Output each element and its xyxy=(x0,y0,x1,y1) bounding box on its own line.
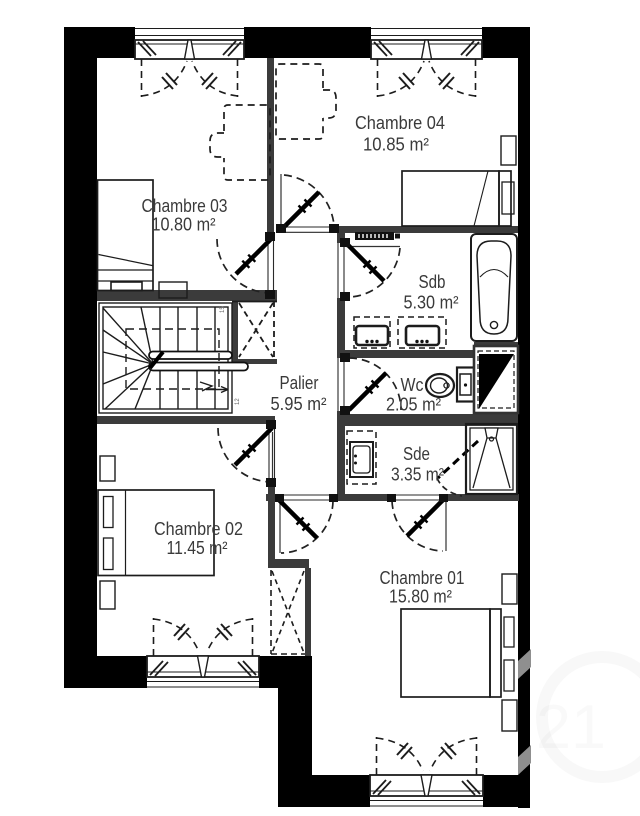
svg-text:3.35 m²: 3.35 m² xyxy=(391,465,444,485)
svg-text:10.85 m²: 10.85 m² xyxy=(363,135,429,155)
svg-text:2.05 m²: 2.05 m² xyxy=(386,395,441,415)
svg-text:Chambre 03: Chambre 03 xyxy=(142,196,228,216)
svg-text:Wc: Wc xyxy=(401,375,424,395)
svg-text:15.80 m²: 15.80 m² xyxy=(389,587,452,607)
svg-text:Chambre 02: Chambre 02 xyxy=(154,519,243,539)
svg-text:Sdb: Sdb xyxy=(419,272,446,292)
svg-text:11.45 m²: 11.45 m² xyxy=(167,538,228,558)
svg-text:Sde: Sde xyxy=(403,444,430,464)
svg-text:15: 15 xyxy=(220,306,226,313)
svg-text:Chambre 04: Chambre 04 xyxy=(355,113,445,133)
svg-text:Palier: Palier xyxy=(280,373,319,393)
svg-text:21: 21 xyxy=(536,693,606,762)
svg-text:5.30 m²: 5.30 m² xyxy=(404,293,459,313)
svg-text:10.80 m²: 10.80 m² xyxy=(152,215,216,235)
svg-text:Chambre 01: Chambre 01 xyxy=(380,568,465,588)
svg-text:12: 12 xyxy=(235,398,241,405)
svg-text:5.95 m²: 5.95 m² xyxy=(271,394,327,414)
